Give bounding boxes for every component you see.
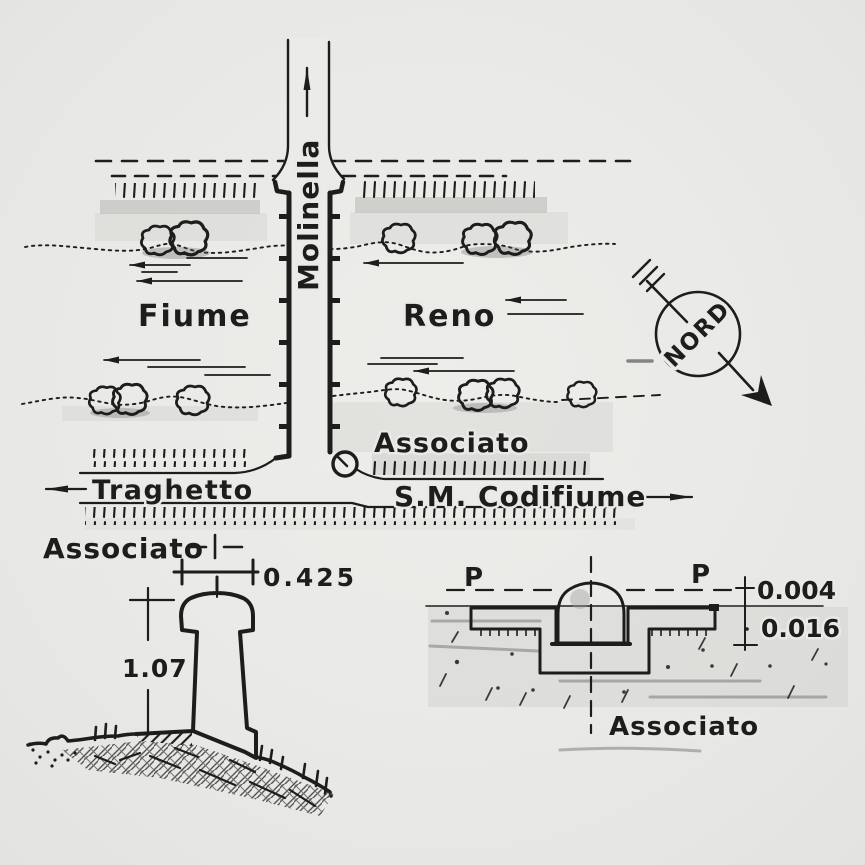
dim-above-value: 0.004	[757, 576, 836, 605]
pavement-level-right: P	[691, 560, 710, 590]
pavement-level-left: P	[464, 563, 483, 593]
legend-row: Associato	[43, 532, 242, 565]
road-left-label: Traghetto	[92, 475, 254, 506]
plate-detail-label: Associato	[609, 712, 759, 742]
hand-drawn-survey-map: Molinella Traghetto S.M. Codifiume Assoc…	[0, 0, 865, 865]
channel-label: Molinella	[292, 139, 325, 291]
road-right-label: S.M. Codifiume	[394, 480, 646, 513]
monument-section-detail: 0.425 1.07	[28, 560, 357, 816]
survey-sketch-page: Molinella Traghetto S.M. Codifiume Assoc…	[0, 0, 865, 865]
compass-label: NORD	[660, 297, 736, 373]
river-left-label: Fiume	[138, 299, 252, 334]
legend-label: Associato	[43, 532, 204, 565]
width-dimension-value: 0.425	[263, 563, 357, 592]
dim-below-value: 0.016	[761, 614, 840, 643]
benchmark-label: Associato	[374, 428, 530, 459]
river-bank-lines	[22, 242, 660, 407]
height-dimension-value: 1.07	[122, 654, 188, 683]
molinella-channel: Molinella	[271, 38, 347, 460]
north-compass: NORD	[633, 260, 772, 406]
river-right-label: Reno	[403, 299, 496, 334]
dashed-road-lines	[96, 161, 630, 176]
monument-body	[181, 593, 256, 758]
